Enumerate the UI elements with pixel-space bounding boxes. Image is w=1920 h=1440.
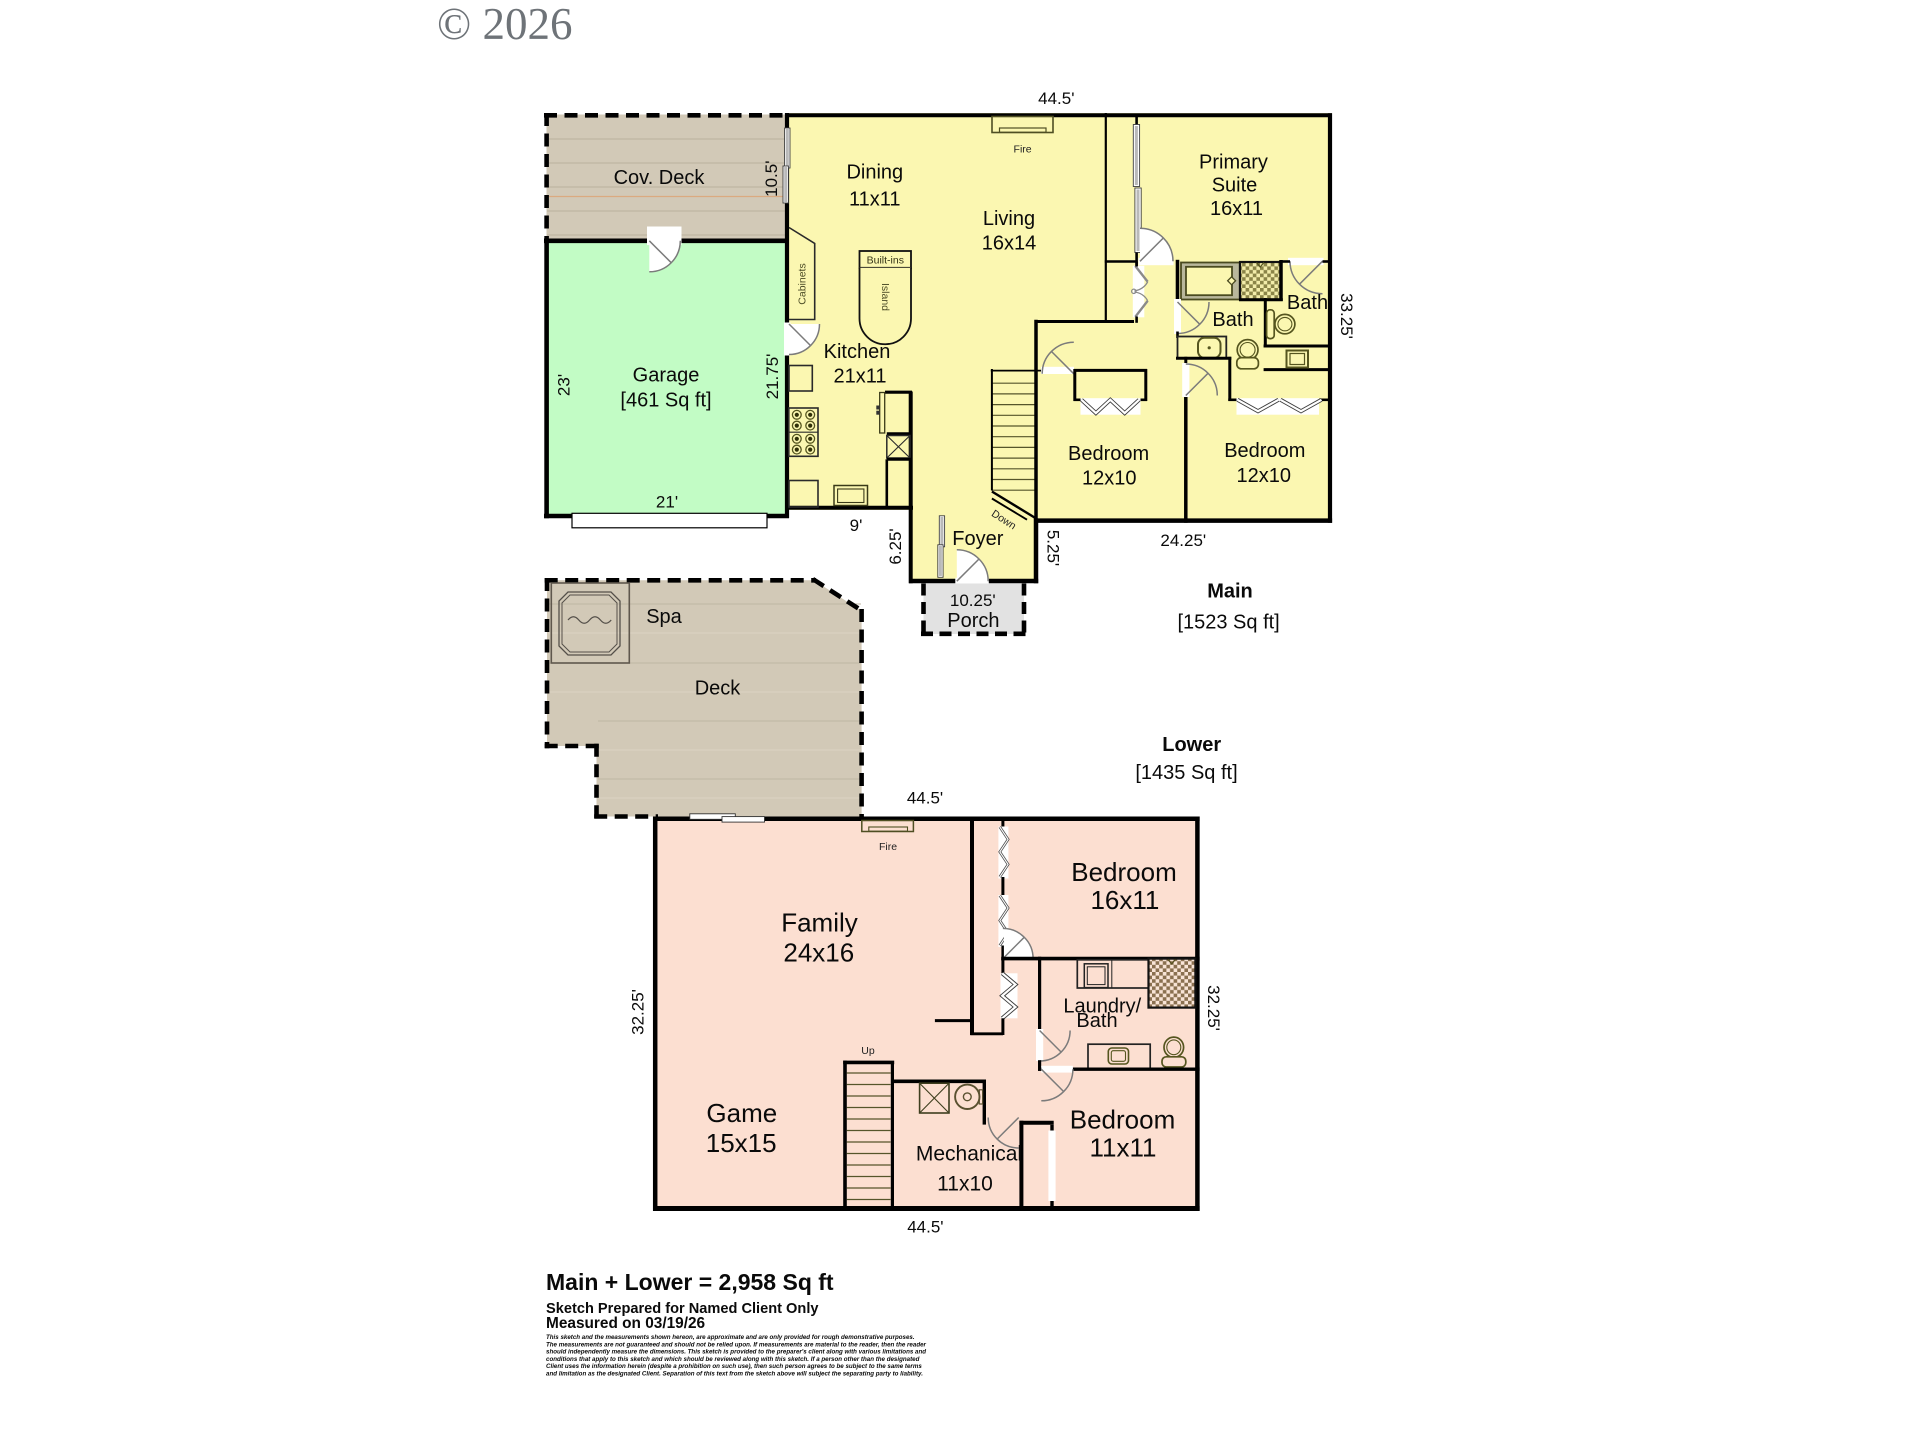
svg-text:44.5': 44.5' (907, 1218, 943, 1237)
svg-text:Garage: Garage (633, 365, 700, 387)
svg-text:[461 Sq ft]: [461 Sq ft] (620, 390, 711, 412)
svg-text:12x10: 12x10 (1082, 468, 1137, 490)
svg-text:Cabinets: Cabinets (797, 263, 809, 304)
svg-text:10.5': 10.5' (762, 161, 781, 197)
svg-text:11x11: 11x11 (849, 189, 901, 211)
svg-text:Island: Island (879, 283, 891, 311)
svg-text:9': 9' (850, 516, 863, 535)
svg-text:should independently measure t: should independently measure the dimensi… (546, 1349, 926, 1356)
svg-text:21': 21' (656, 493, 678, 512)
svg-text:This sketch and the measuremen: This sketch and the measurements shown h… (546, 1334, 915, 1341)
svg-text:Bath: Bath (1076, 1010, 1117, 1032)
svg-text:12x10: 12x10 (1237, 465, 1292, 487)
svg-text:Measured on 03/19/26: Measured on 03/19/26 (546, 1315, 705, 1332)
svg-text:Up: Up (861, 1045, 875, 1057)
svg-text:6.25': 6.25' (886, 528, 905, 564)
svg-text:11x11: 11x11 (1090, 1133, 1157, 1163)
svg-text:Deck: Deck (695, 678, 742, 700)
svg-text:Bedroom: Bedroom (1068, 443, 1149, 465)
svg-text:24x16: 24x16 (783, 938, 854, 968)
svg-text:32.25': 32.25' (1204, 985, 1223, 1031)
svg-text:and limitation as the designat: and limitation as the designated Client.… (546, 1371, 923, 1378)
svg-text:Fire: Fire (879, 841, 897, 853)
svg-text:Main: Main (1207, 581, 1253, 603)
svg-text:Spa: Spa (646, 606, 682, 628)
svg-text:[1523 Sq ft]: [1523 Sq ft] (1177, 612, 1279, 634)
svg-text:Fire: Fire (1014, 144, 1032, 156)
svg-text:Family: Family (781, 908, 858, 938)
svg-text:5.25': 5.25' (1043, 530, 1062, 566)
svg-text:33.25': 33.25' (1337, 293, 1356, 339)
svg-text:Kitchen: Kitchen (824, 341, 891, 363)
svg-text:Living: Living (983, 208, 1035, 230)
svg-text:[1435 Sq ft]: [1435 Sq ft] (1135, 762, 1237, 784)
svg-text:© 2026: © 2026 (437, 0, 572, 49)
svg-text:15x15: 15x15 (706, 1128, 777, 1158)
svg-text:32.25': 32.25' (629, 989, 648, 1035)
svg-text:Bath: Bath (1212, 309, 1253, 331)
svg-text:44.5': 44.5' (1038, 89, 1074, 108)
svg-text:The measurements are not guara: The measurements are not guaranteed and … (546, 1341, 927, 1348)
svg-text:Foyer: Foyer (952, 528, 1003, 550)
svg-text:Primary: Primary (1199, 152, 1268, 174)
svg-text:Bath: Bath (1287, 292, 1328, 314)
svg-text:Suite: Suite (1212, 175, 1258, 197)
svg-text:21x11: 21x11 (833, 366, 886, 388)
svg-text:10.25': 10.25' (950, 591, 996, 610)
svg-text:Bedroom: Bedroom (1070, 1105, 1176, 1135)
svg-text:44.5': 44.5' (907, 789, 943, 808)
svg-text:Mechanical: Mechanical (916, 1143, 1022, 1166)
svg-text:Game: Game (706, 1098, 777, 1128)
svg-text:24.25': 24.25' (1160, 531, 1206, 550)
svg-text:Client uses the information he: Client uses the information herein (desp… (546, 1363, 922, 1370)
svg-text:16x11: 16x11 (1210, 198, 1263, 220)
svg-text:23': 23' (555, 374, 574, 396)
svg-text:Main + Lower = 2,958 Sq ft: Main + Lower = 2,958 Sq ft (546, 1269, 834, 1295)
svg-text:16x14: 16x14 (982, 233, 1037, 255)
svg-text:16x11: 16x11 (1090, 885, 1159, 915)
svg-text:conditions that apply to this: conditions that apply to this sketch and… (546, 1356, 920, 1363)
svg-text:Bedroom: Bedroom (1071, 857, 1177, 887)
svg-text:Lower: Lower (1162, 734, 1221, 756)
svg-text:Built-ins: Built-ins (867, 255, 904, 267)
svg-text:Cov. Deck: Cov. Deck (614, 167, 706, 189)
svg-text:11x10: 11x10 (937, 1173, 993, 1196)
svg-text:Bedroom: Bedroom (1224, 440, 1305, 462)
svg-text:21.75': 21.75' (763, 354, 782, 400)
svg-text:Dining: Dining (846, 162, 903, 184)
svg-text:Porch: Porch (947, 610, 999, 632)
